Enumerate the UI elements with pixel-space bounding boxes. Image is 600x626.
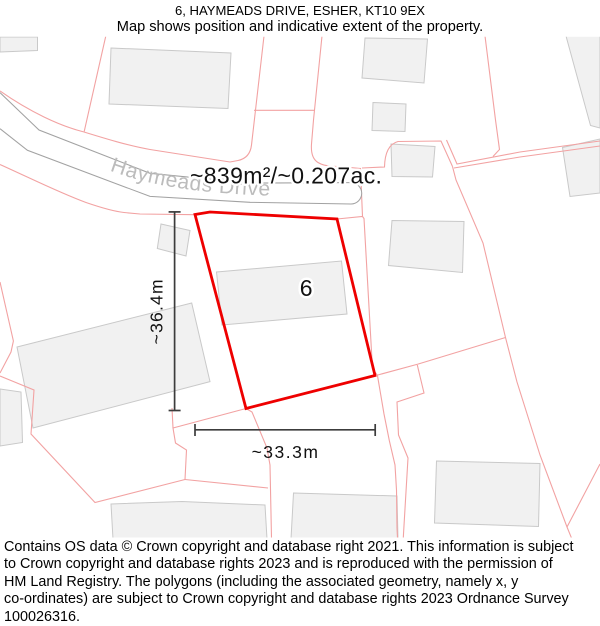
svg-text:~36.4m: ~36.4m bbox=[146, 278, 166, 344]
svg-text:~839m²/~0.207ac.: ~839m²/~0.207ac. bbox=[190, 162, 382, 188]
svg-text:~33.3m: ~33.3m bbox=[252, 442, 320, 462]
svg-text:6: 6 bbox=[300, 275, 313, 301]
